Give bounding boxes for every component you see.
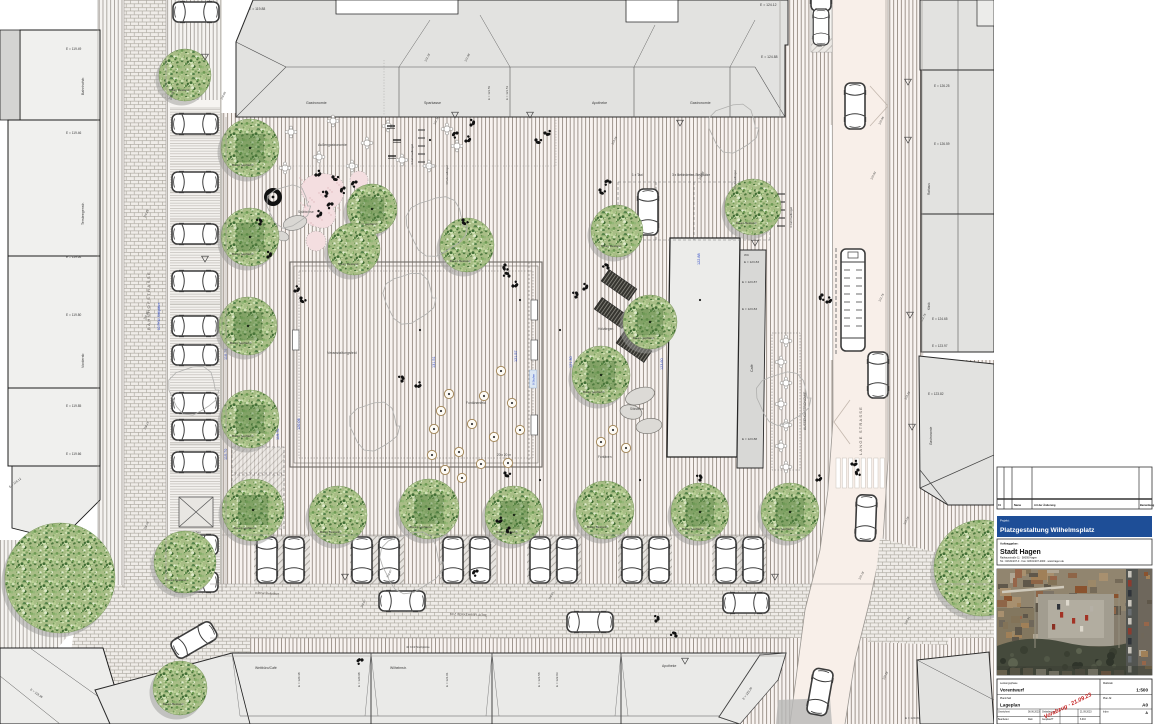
svg-text:121.57: 121.57	[514, 350, 518, 362]
svg-text:123.60: 123.60	[660, 358, 664, 370]
svg-text:Baum gepflanzt: Baum gepflanzt	[232, 163, 254, 167]
svg-text:Klinik: Klinik	[927, 302, 931, 310]
svg-text:Maßstab: Maßstab	[1103, 682, 1113, 685]
svg-text:Tersteegenstr.: Tersteegenstr.	[81, 202, 85, 225]
svg-text:E = 119.88: E = 119.88	[249, 7, 265, 11]
svg-text:Baum gepflanzt: Baum gepflanzt	[772, 527, 794, 531]
svg-text:Außengastronomie: Außengastronomie	[318, 143, 347, 147]
svg-text:Wettbüro/Café: Wettbüro/Café	[255, 666, 277, 670]
svg-text:E = 120.98: E = 120.98	[357, 672, 361, 687]
svg-text:Leistungsphase: Leistungsphase	[1000, 682, 1018, 685]
svg-text:E = 123.83: E = 123.83	[742, 307, 757, 311]
svg-text:Baum gepflanzt: Baum gepflanzt	[410, 525, 432, 529]
svg-text:Platzgestaltung Wilhelmsplatz: Platzgestaltung Wilhelmsplatz	[1000, 527, 1095, 534]
svg-text:Spielwiese: Spielwiese	[298, 210, 314, 214]
svg-text:E = 123.88: E = 123.88	[742, 437, 757, 441]
svg-text:BAHNHOFSTRASSE: BAHNHOFSTRASSE	[146, 271, 151, 330]
svg-text:Stadt Hagen: Stadt Hagen	[1000, 549, 1041, 556]
svg-text:9 Stufen: 9 Stufen	[532, 373, 536, 385]
svg-text:4 Fahrradbügel: 4 Fahrradbügel	[733, 170, 737, 190]
svg-text:8 PKW-Stellplätze: 8 PKW-Stellplätze	[255, 591, 280, 596]
svg-text:E = 119.49: E = 119.49	[66, 47, 81, 51]
svg-text:Baum Bestand: Baum Bestand	[736, 221, 757, 225]
svg-text:Dam: Dam	[1028, 719, 1033, 721]
svg-text:E = 120.38: E = 120.38	[297, 672, 301, 687]
svg-text:Vorderstr.: Vorderstr.	[81, 353, 85, 368]
svg-text:Baum Bestand: Baum Bestand	[320, 530, 341, 534]
svg-text:08.06.2023: 08.06.2023	[1028, 712, 1040, 714]
svg-text:120.06: 120.06	[297, 418, 301, 430]
svg-text:Apotheke: Apotheke	[662, 664, 676, 668]
svg-text:Baum gepflanzt: Baum gepflanzt	[234, 526, 256, 530]
svg-text:E = 124.65: E = 124.65	[932, 317, 948, 321]
svg-text:Auftraggeber:: Auftraggeber:	[1000, 542, 1019, 546]
svg-text:E = 122.03: E = 122.03	[555, 672, 559, 687]
svg-text:A0: A0	[1142, 703, 1148, 708]
svg-text:E = 120.84: E = 120.84	[905, 716, 920, 720]
svg-text:Gastronomie: Gastronomie	[929, 427, 933, 445]
svg-text:Bahnhofstr.: Bahnhofstr.	[81, 77, 85, 95]
svg-text:Café: Café	[750, 364, 754, 372]
svg-text:Projekt:: Projekt:	[1000, 519, 1010, 523]
svg-text:Bearbeitet: Bearbeitet	[998, 718, 1009, 721]
svg-text:E = 123.82: E = 123.82	[928, 392, 944, 396]
svg-text:40 KFZ Stellplätze: 40 KFZ Stellplätze	[406, 645, 430, 649]
svg-text:Art der Änderung: Art der Änderung	[1034, 503, 1056, 507]
svg-text:Baum gepflanzt: Baum gepflanzt	[232, 434, 254, 438]
svg-text:LANGE STRASSE: LANGE STRASSE	[858, 406, 863, 455]
svg-text:Baum Bestand: Baum Bestand	[166, 578, 187, 582]
svg-text:10 PKW-Stellplätze: 10 PKW-Stellplätze	[157, 302, 161, 330]
svg-text:Vorentwurf: Vorentwurf	[1000, 688, 1024, 693]
svg-text:Baum gepflanzt: Baum gepflanzt	[682, 527, 704, 531]
svg-text:Sitzsteine: Sitzsteine	[630, 407, 644, 411]
svg-text:21.09.2023: 21.09.2023	[1080, 712, 1092, 714]
svg-text:E = 119.80: E = 119.80	[66, 313, 81, 317]
svg-text:A: A	[1145, 711, 1148, 715]
svg-text:Apotheke: Apotheke	[592, 101, 607, 105]
svg-text:Baum gepflanzt: Baum gepflanzt	[633, 336, 655, 340]
svg-text:122.88: 122.88	[697, 253, 701, 265]
svg-text:Baum gepflanzt: Baum gepflanzt	[230, 341, 252, 345]
svg-text:3 x Behinderten-Stellplätze: 3 x Behinderten-Stellplätze	[672, 173, 710, 177]
svg-text:E = 121.59: E = 121.59	[487, 86, 491, 100]
svg-text:E = 126.59: E = 126.59	[934, 142, 950, 146]
svg-text:E = 123.83: E = 123.83	[744, 260, 759, 264]
svg-text:6.016: 6.016	[1080, 719, 1086, 721]
svg-text:E = 119.64: E = 119.64	[66, 255, 81, 259]
svg-text:E = 121.53: E = 121.53	[505, 86, 509, 100]
svg-text:Baum Bestand: Baum Bestand	[163, 702, 184, 706]
svg-text:Planinhalt: Planinhalt	[1000, 697, 1011, 700]
svg-text:E = 119.66: E = 119.66	[66, 452, 81, 456]
svg-text:E = 121.01: E = 121.01	[445, 672, 449, 687]
svg-text:E = 119.46: E = 119.46	[66, 131, 81, 135]
svg-text:Gastronomie: Gastronomie	[690, 101, 711, 105]
svg-text:Fontänen: Fontänen	[598, 455, 612, 459]
svg-text:E = 119.85: E = 119.85	[66, 404, 81, 408]
svg-text:Baum Bestand: Baum Bestand	[338, 262, 359, 266]
svg-text:Baum gepflanzt: Baum gepflanzt	[232, 252, 254, 256]
svg-text:Baum Bestand: Baum Bestand	[587, 525, 608, 529]
svg-text:4 Fahrradbügel: 4 Fahrradbügel	[789, 207, 793, 228]
svg-text:20 x 20 m: 20 x 20 m	[497, 453, 511, 457]
svg-text:Tel.: 02331/207-0 · Fax: 02331: Tel.: 02331/207-0 · Fax: 02331/207-2000 …	[1000, 560, 1065, 563]
svg-text:E = 124.88: E = 124.88	[761, 55, 778, 59]
svg-text:E = 126.25: E = 126.25	[934, 84, 950, 88]
svg-text:1 x Taxi: 1 x Taxi	[632, 173, 643, 177]
svg-text:Plan-Nr.: Plan-Nr.	[1103, 697, 1112, 700]
svg-text:Sparkasse: Sparkasse	[424, 101, 441, 105]
svg-text:E = 123.97: E = 123.97	[932, 344, 948, 348]
svg-text:Veranstaltungsfeld: Veranstaltungsfeld	[327, 351, 357, 355]
svg-text:Wilhelmstr.: Wilhelmstr.	[390, 666, 407, 670]
svg-text:E = 124.12: E = 124.12	[760, 3, 777, 7]
svg-text:Bemerkung: Bemerkung	[1140, 503, 1155, 507]
svg-text:E = 123.87: E = 123.87	[742, 280, 757, 284]
svg-text:E = 121.58: E = 121.58	[537, 672, 541, 687]
svg-text:131.51: 131.51	[432, 356, 436, 368]
svg-text:Lageplan: Lageplan	[1000, 703, 1020, 708]
svg-text:Fontänenfeld: Fontänenfeld	[466, 401, 486, 405]
svg-text:Name: Name	[1014, 503, 1022, 507]
svg-text:Index: Index	[1103, 712, 1109, 714]
svg-text:WC: WC	[744, 253, 750, 257]
svg-text:Baum Bestand: Baum Bestand	[601, 244, 622, 248]
svg-text:Baum Bestand: Baum Bestand	[450, 259, 471, 263]
svg-text:Gezeichnet: Gezeichnet	[998, 711, 1010, 714]
svg-text:Gastronomie: Gastronomie	[306, 101, 327, 105]
svg-text:Baum gepflanzt: Baum gepflanzt	[583, 390, 605, 394]
svg-text:1:500: 1:500	[1136, 688, 1148, 693]
svg-text:4 Fahrradbügel: 4 Fahrradbügel	[410, 144, 414, 165]
svg-text:4 Fahrradbügel: 4 Fahrradbügel	[445, 165, 449, 185]
svg-text:Holzliegen: Holzliegen	[598, 327, 614, 331]
svg-text:Rathaus: Rathaus	[927, 183, 931, 195]
